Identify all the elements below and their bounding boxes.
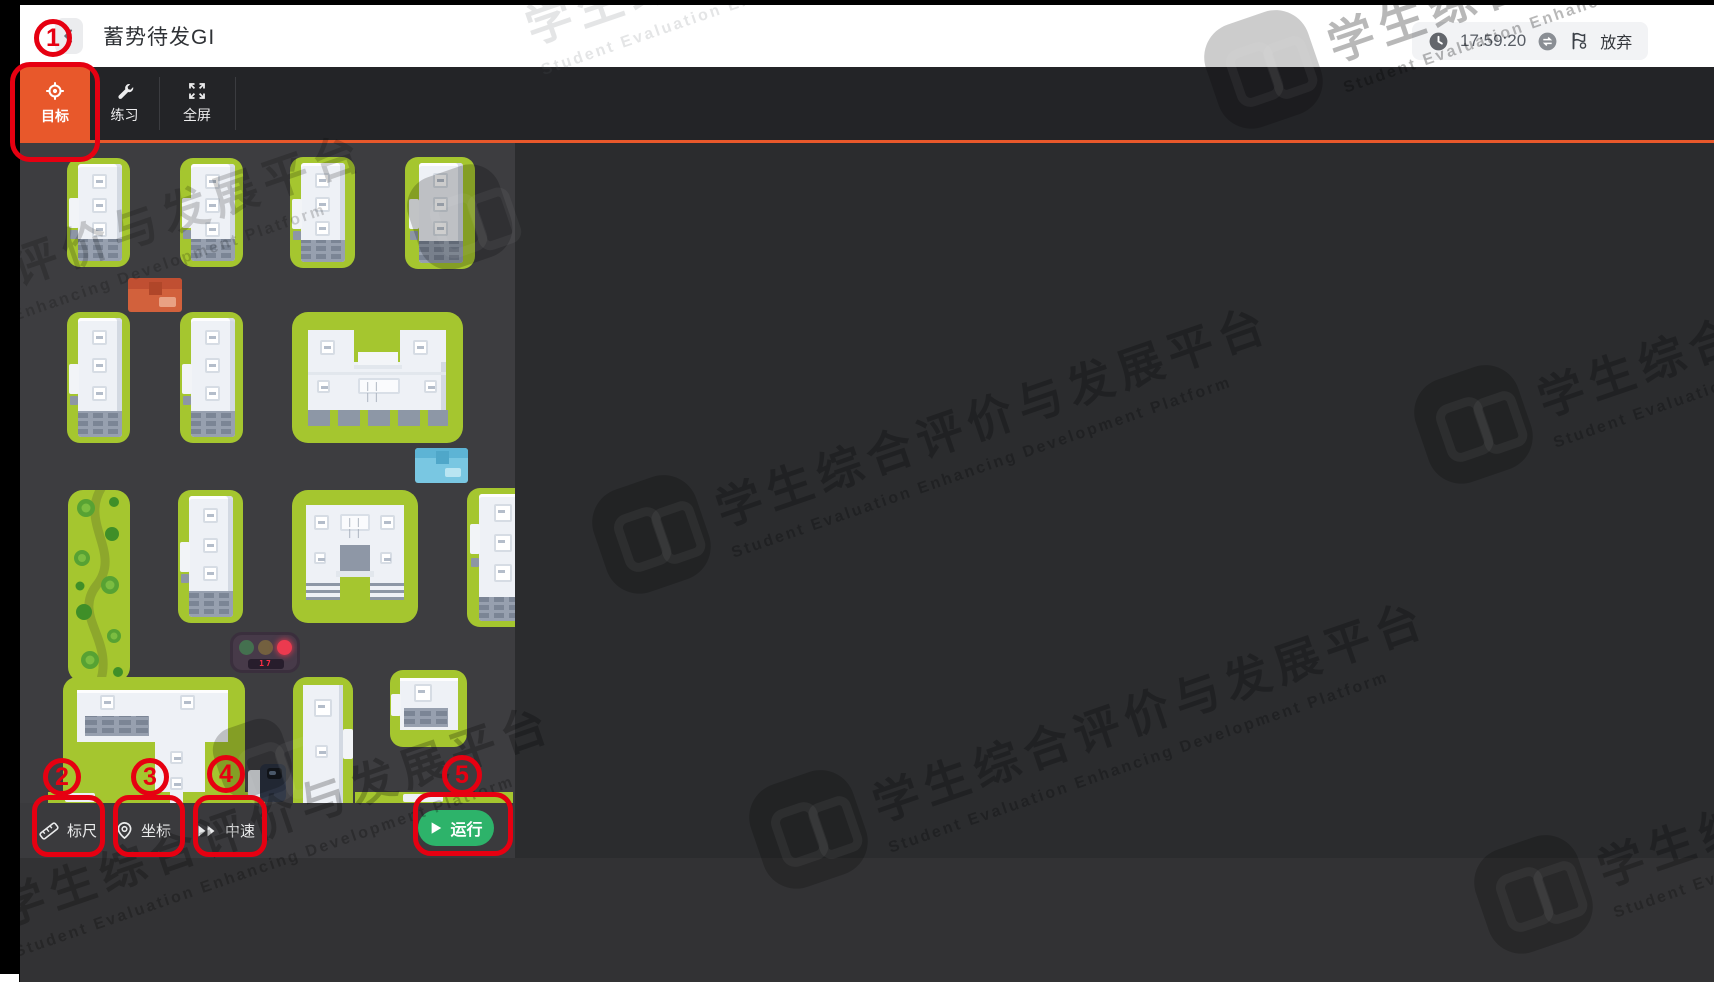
park [68, 490, 130, 682]
ruler-toggle[interactable]: 标尺 [38, 803, 97, 858]
back-button[interactable] [55, 18, 83, 54]
coordinate-toggle[interactable]: 坐标 [115, 803, 171, 858]
sidewalk [65, 793, 95, 802]
fullscreen-icon [188, 82, 206, 100]
traffic-red-light [277, 640, 292, 655]
countdown-time: 17:59:20 [1460, 31, 1526, 51]
tab-goal-label: 目标 [41, 106, 69, 126]
building [293, 677, 353, 803]
accent-underline [20, 140, 1714, 143]
player-character [248, 763, 288, 803]
wrench-icon [116, 82, 134, 100]
building [180, 158, 243, 267]
tab-fullscreen-label: 全屏 [183, 105, 211, 125]
building-partial [467, 488, 515, 627]
traffic-light: 17 [230, 632, 300, 673]
map-control-bar: 标尺 坐标 中速 运行 [20, 803, 515, 858]
building [290, 157, 355, 268]
map-pin-icon [115, 821, 134, 840]
screen-edge [0, 0, 1714, 5]
abandon-button[interactable]: 放弃 [1600, 29, 1632, 53]
divider [235, 77, 236, 130]
speed-label: 中速 [225, 820, 255, 841]
building [67, 312, 130, 443]
back-icon [59, 26, 79, 46]
tab-fullscreen[interactable]: 全屏 [159, 67, 235, 140]
play-icon [429, 821, 443, 835]
fast-forward-icon [197, 823, 218, 839]
park-trees [68, 490, 130, 682]
abandon-flag-icon [1569, 31, 1589, 51]
target-icon [45, 81, 65, 101]
run-button[interactable]: 运行 [418, 810, 494, 846]
crate-blue [415, 448, 468, 483]
building-u-shape [292, 312, 463, 443]
swap-icon[interactable] [1537, 31, 1558, 52]
traffic-yellow-light [258, 640, 273, 655]
run-label: 运行 [450, 816, 482, 840]
clock-icon [1428, 31, 1449, 52]
building-large [63, 677, 245, 803]
crate-orange [128, 278, 182, 312]
traffic-countdown: 17 [248, 659, 284, 669]
game-map: 17 [20, 143, 515, 803]
coordinate-label: 坐标 [141, 820, 171, 841]
tab-practice[interactable]: 练习 [90, 67, 159, 140]
screen-edge [0, 0, 20, 982]
building [67, 158, 130, 267]
building [180, 312, 243, 443]
speed-toggle[interactable]: 中速 [197, 803, 255, 858]
bottom-panel [20, 858, 1714, 982]
building [178, 490, 243, 623]
tab-goal[interactable]: 目标 [20, 67, 90, 140]
corner-notch [0, 974, 19, 982]
building-arch [292, 490, 418, 623]
page-title: 蓄势待发GI [103, 21, 215, 51]
divider [159, 77, 160, 130]
traffic-green-light [239, 640, 254, 655]
code-panel-empty [515, 143, 1714, 858]
ruler-label: 标尺 [67, 820, 97, 841]
tab-practice-label: 练习 [111, 105, 139, 125]
header: 蓄势待发GI 17:59:20 放弃 [18, 5, 1714, 67]
ruler-icon [38, 820, 60, 842]
toolbar: 目标 练习 全屏 [20, 67, 1714, 140]
building-small [390, 670, 467, 747]
building [405, 157, 475, 269]
status-pill: 17:59:20 放弃 [1412, 22, 1648, 60]
sidewalk [403, 794, 443, 802]
